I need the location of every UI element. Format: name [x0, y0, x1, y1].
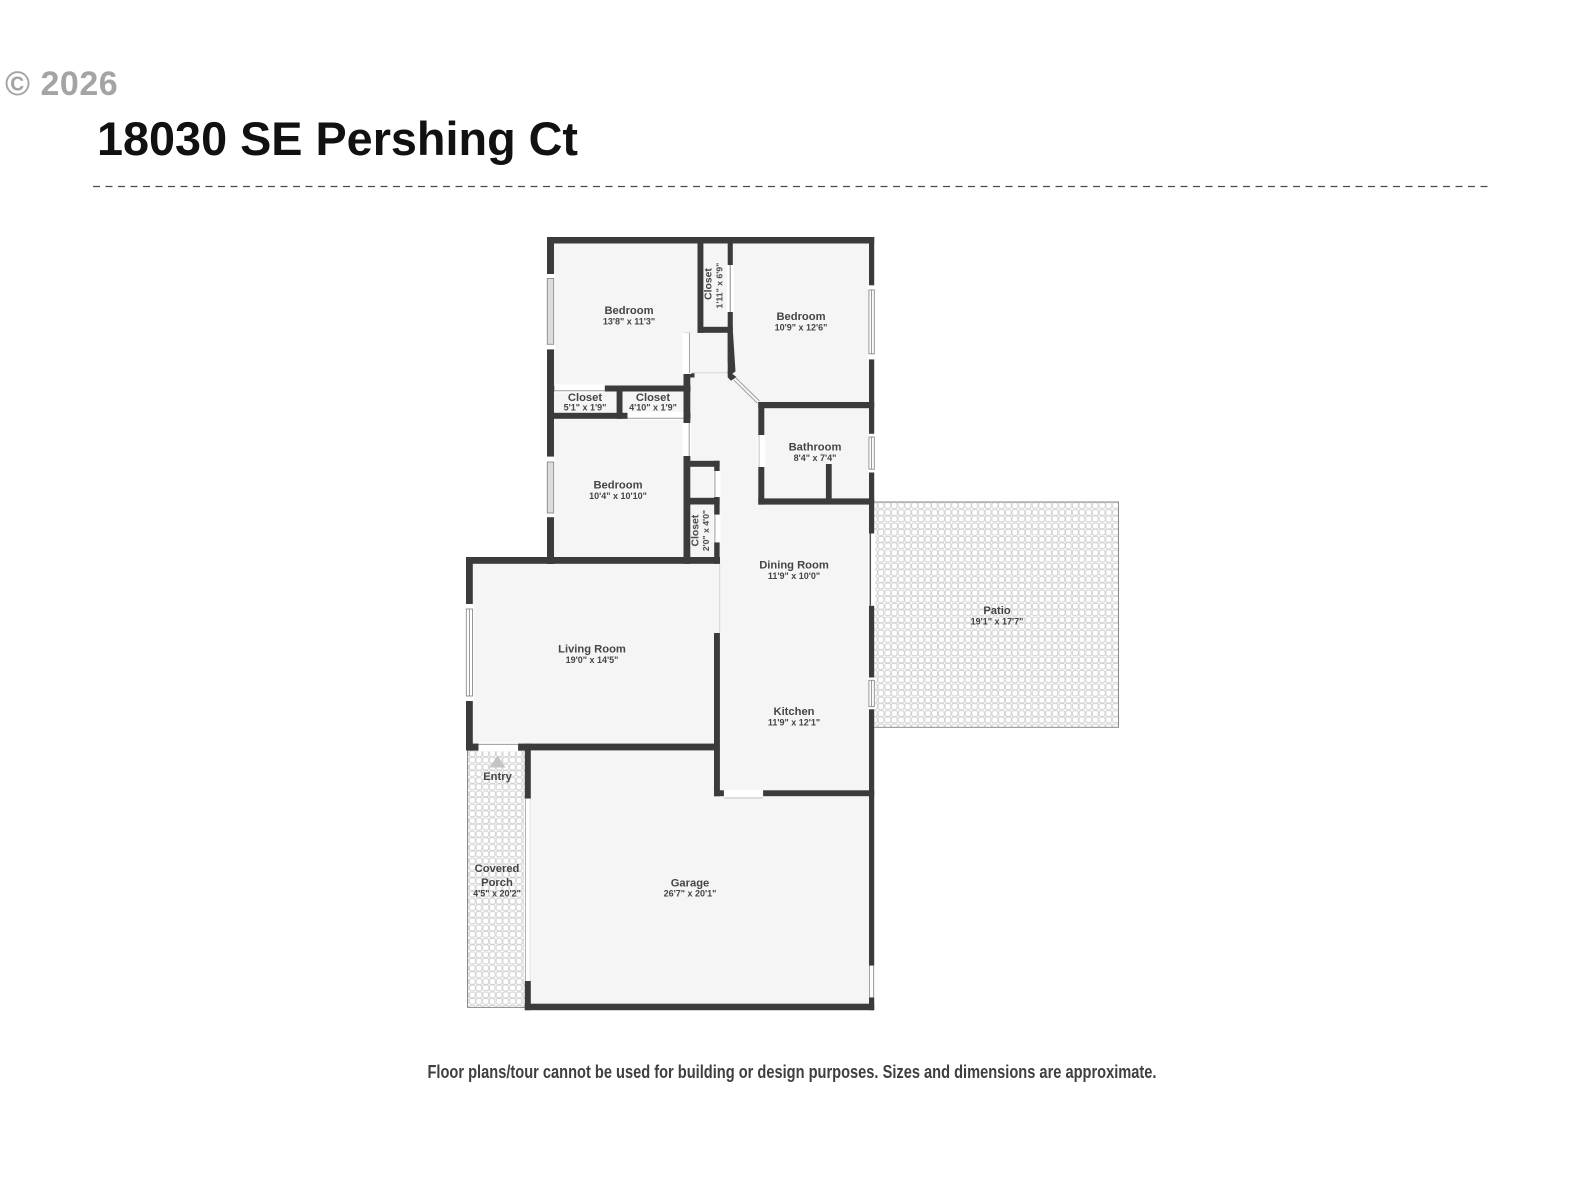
svg-text:11'9" x 12'1": 11'9" x 12'1": [768, 717, 820, 727]
svg-text:13'8" x 11'3": 13'8" x 11'3": [603, 316, 655, 326]
svg-text:Entry: Entry: [483, 771, 512, 783]
svg-text:10'9" x 12'6": 10'9" x 12'6": [775, 323, 828, 333]
svg-text:19'0" x 14'5": 19'0" x 14'5": [566, 655, 619, 665]
svg-text:Bedroom: Bedroom: [776, 311, 825, 323]
svg-text:1'11" x 6'9": 1'11" x 6'9": [715, 263, 725, 309]
svg-text:2'0" x 4'0": 2'0" x 4'0": [701, 510, 711, 551]
svg-text:Closet: Closet: [691, 514, 702, 546]
svg-text:Porch: Porch: [481, 877, 513, 889]
svg-text:Patio: Patio: [983, 605, 1011, 617]
svg-text:Covered: Covered: [475, 863, 520, 875]
svg-text:Dining Room: Dining Room: [759, 560, 829, 572]
svg-text:Living Room: Living Room: [558, 644, 626, 656]
svg-text:10'4" x 10'10": 10'4" x 10'10": [589, 491, 647, 501]
svg-text:26'7" x 20'1": 26'7" x 20'1": [664, 889, 717, 899]
svg-text:Bathroom: Bathroom: [789, 442, 842, 454]
svg-text:4'10" x 1'9": 4'10" x 1'9": [629, 402, 677, 412]
svg-text:4'5" x 20'2": 4'5" x 20'2": [473, 889, 521, 899]
svg-text:11'9" x 10'0": 11'9" x 10'0": [768, 571, 820, 581]
svg-text:Bedroom: Bedroom: [604, 305, 653, 317]
svg-text:Bedroom: Bedroom: [593, 480, 642, 492]
svg-text:18030 SE Pershing Ct: 18030 SE Pershing Ct: [97, 112, 578, 165]
svg-text:19'1" x 17'7": 19'1" x 17'7": [971, 616, 1024, 626]
svg-text:5'1" x 1'9": 5'1" x 1'9": [564, 402, 607, 412]
svg-text:© 2026: © 2026: [5, 65, 118, 103]
svg-text:Kitchen: Kitchen: [773, 706, 814, 718]
svg-text:8'4" x 7'4": 8'4" x 7'4": [794, 453, 837, 463]
svg-text:Floor plans/tour cannot be use: Floor plans/tour cannot be used for buil…: [428, 1061, 1157, 1082]
svg-text:Closet: Closet: [704, 268, 715, 300]
